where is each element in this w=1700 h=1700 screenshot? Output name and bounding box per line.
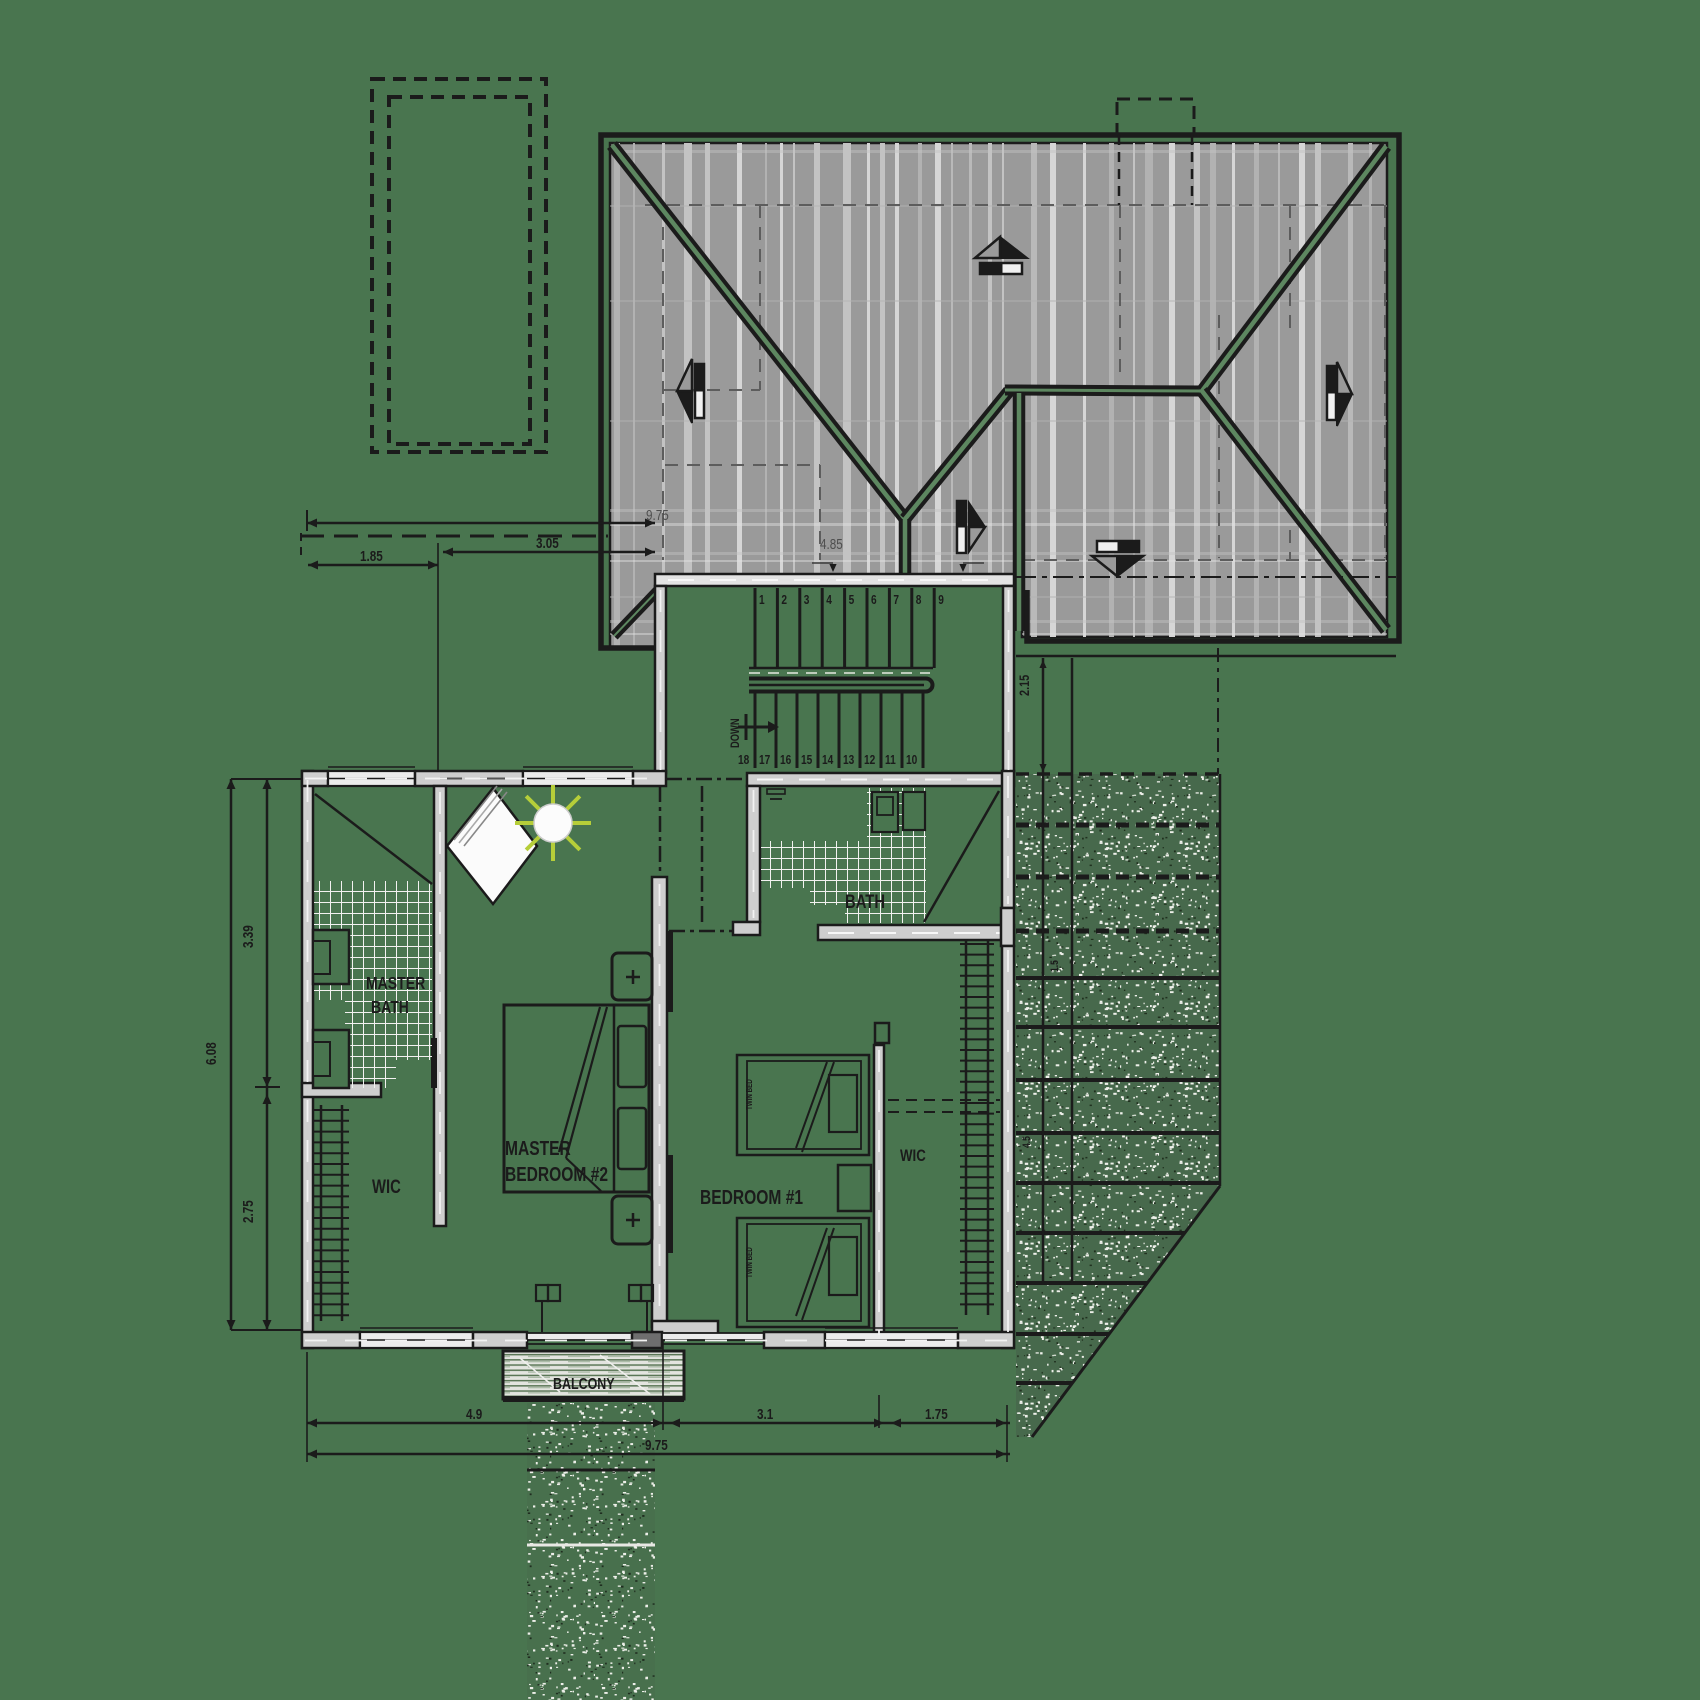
svg-text:4.85: 4.85 (820, 536, 843, 553)
svg-text:12: 12 (864, 753, 876, 767)
svg-text:WIC: WIC (900, 1147, 926, 1166)
svg-text:2.15: 2.15 (1017, 675, 1033, 696)
svg-text:MASTER: MASTER (505, 1137, 571, 1159)
svg-text:4.9: 4.9 (466, 1406, 482, 1423)
svg-text:17: 17 (759, 753, 770, 767)
svg-text:5: 5 (849, 593, 855, 607)
svg-text:4.5: 4.5 (1021, 1136, 1033, 1148)
svg-text:1.75: 1.75 (925, 1406, 948, 1423)
svg-text:TWIN BED: TWIN BED (745, 1079, 754, 1110)
svg-text:1.85: 1.85 (360, 548, 383, 565)
svg-text:6.08: 6.08 (203, 1042, 220, 1065)
svg-text:7: 7 (893, 593, 899, 607)
svg-text:WIC: WIC (372, 1176, 401, 1197)
svg-text:14: 14 (822, 753, 834, 767)
svg-text:2.75: 2.75 (240, 1200, 257, 1223)
svg-text:18: 18 (738, 753, 750, 767)
svg-text:3.39: 3.39 (240, 925, 257, 948)
svg-text:1: 1 (759, 593, 765, 607)
svg-text:13: 13 (843, 753, 855, 767)
svg-text:9.75: 9.75 (645, 1437, 668, 1454)
svg-text:MASTER: MASTER (366, 973, 426, 993)
svg-text:6: 6 (871, 593, 877, 607)
svg-text:TWIN BED: TWIN BED (745, 1247, 754, 1278)
svg-text:10: 10 (906, 753, 917, 767)
svg-text:3.1: 3.1 (757, 1406, 774, 1423)
svg-text:16: 16 (780, 753, 792, 767)
svg-text:9: 9 (938, 593, 944, 607)
svg-text:4: 4 (826, 593, 832, 607)
svg-text:8: 8 (916, 593, 922, 607)
svg-text:11: 11 (885, 753, 896, 767)
svg-text:BATH: BATH (845, 891, 885, 912)
svg-text:15: 15 (801, 753, 813, 767)
svg-text:1.5: 1.5 (1049, 960, 1061, 972)
svg-text:3.05: 3.05 (536, 535, 559, 552)
svg-text:BEDROOM #2: BEDROOM #2 (505, 1163, 608, 1185)
svg-text:3: 3 (804, 593, 810, 607)
svg-text:BALCONY: BALCONY (553, 1376, 615, 1394)
svg-text:BATH: BATH (371, 997, 409, 1017)
svg-text:BEDROOM #1: BEDROOM #1 (700, 1186, 803, 1208)
svg-text:2: 2 (781, 593, 787, 607)
svg-text:DOWN: DOWN (729, 718, 742, 748)
